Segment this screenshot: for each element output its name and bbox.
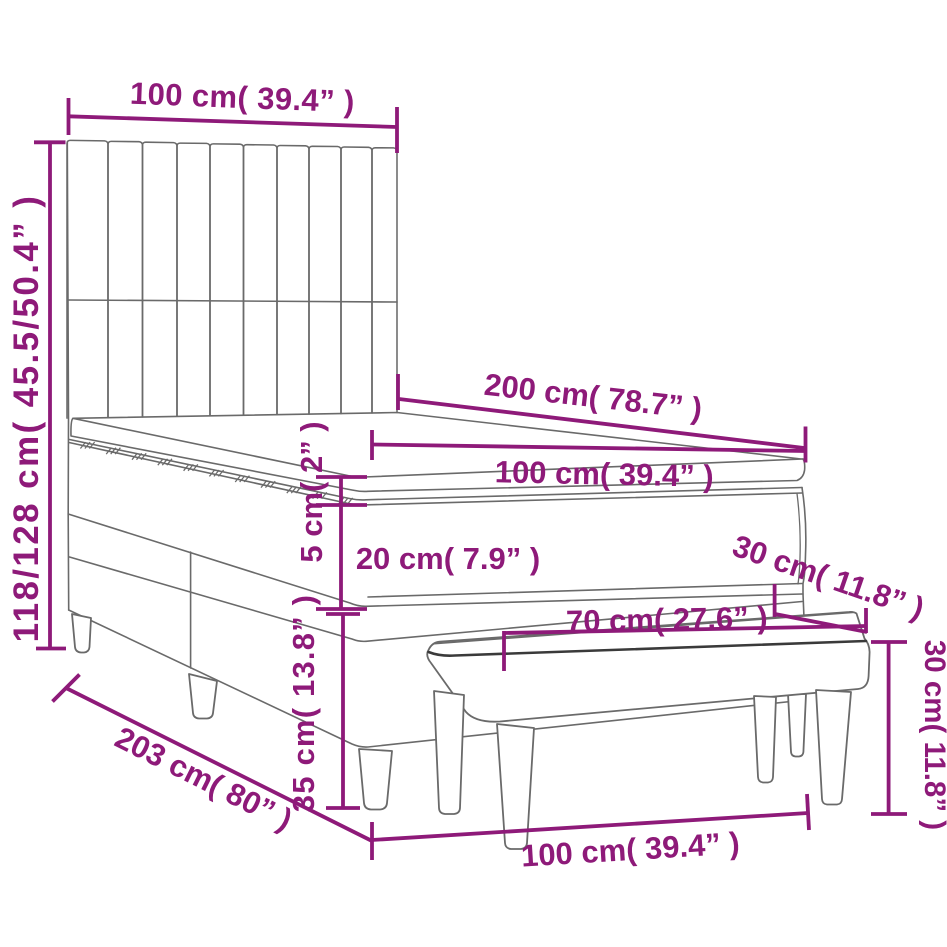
svg-text:70 cm( 27.6” ): 70 cm( 27.6” ): [566, 600, 768, 639]
svg-text:118/128 cm( 45.5/50.4” ): 118/128 cm( 45.5/50.4” ): [7, 194, 46, 643]
svg-text:20 cm( 7.9” ): 20 cm( 7.9” ): [356, 541, 540, 576]
svg-text:30 cm( 11.8” ): 30 cm( 11.8” ): [918, 640, 947, 830]
svg-text:35 cm( 13.8” ): 35 cm( 13.8” ): [286, 594, 321, 812]
svg-text:5 cm( 2” ): 5 cm( 2” ): [294, 421, 329, 562]
svg-text:100 cm( 39.4” ): 100 cm( 39.4” ): [494, 454, 714, 494]
